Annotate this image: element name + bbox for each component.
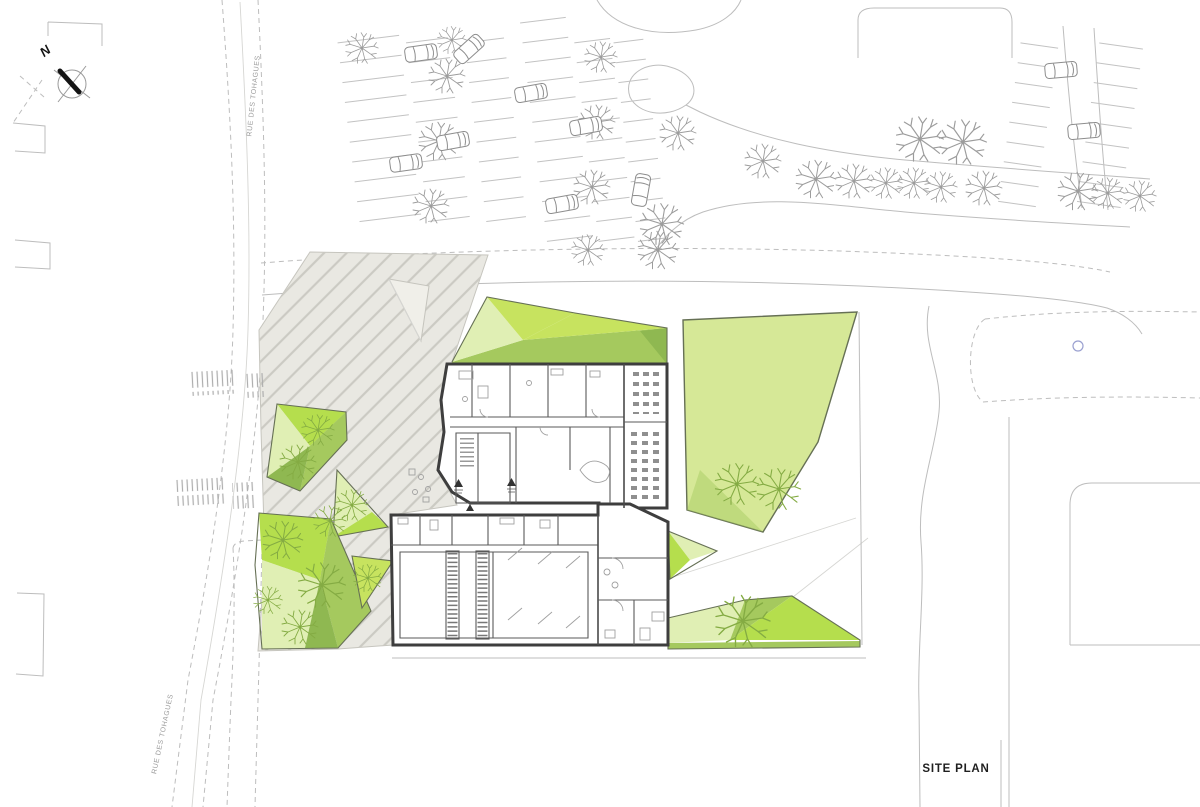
north-arrow-icon [54,66,90,102]
plan-title: SITE PLAN [922,763,989,775]
lawn-east [683,312,857,532]
manhole-circle [1073,341,1083,351]
mini-parking-stalls [998,32,1060,208]
lower-building [391,504,668,645]
crosswalks [176,370,265,509]
site-plan: RUE DES TOHAGUES RUE DES TOHAGUES N SITE… [0,0,1200,807]
green-band-north [452,297,667,364]
site-plan-drawing [0,0,1200,807]
greens-southeast [668,531,860,649]
